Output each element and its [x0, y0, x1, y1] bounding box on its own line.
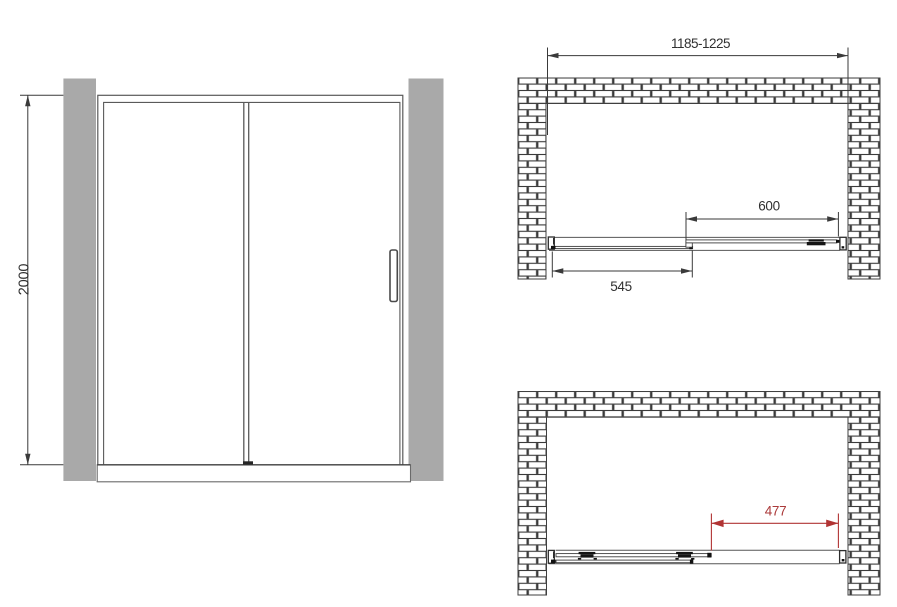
svg-text:2000: 2000	[17, 264, 33, 296]
svg-text:1185-1225: 1185-1225	[671, 36, 730, 51]
svg-text:600: 600	[758, 199, 780, 214]
svg-text:477: 477	[765, 504, 787, 519]
svg-text:545: 545	[610, 279, 632, 294]
